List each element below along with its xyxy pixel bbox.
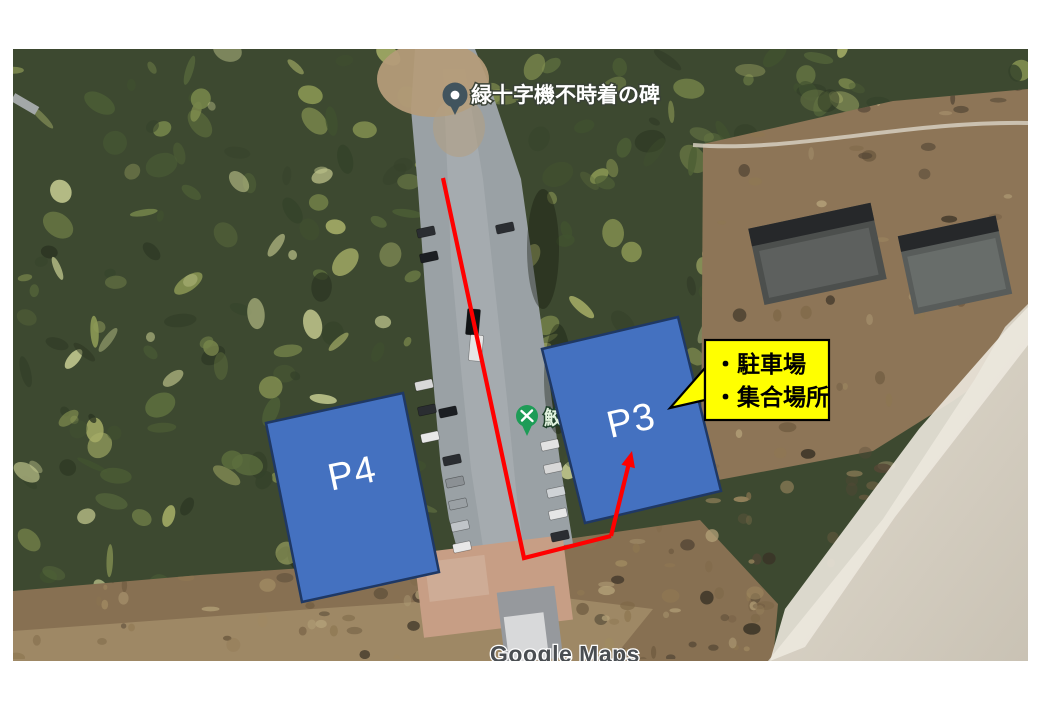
satellite-map-image: 鮫 P4 P3 ・駐車場 ・集合場	[13, 49, 1028, 661]
callout-line-1: ・駐車場	[714, 351, 806, 377]
terrain-backdrop	[13, 49, 1028, 661]
monument-pin-label: 緑十字機不時着の碑	[471, 83, 660, 107]
slide-canvas: 鮫 P4 P3 ・駐車場 ・集合場	[0, 0, 1040, 720]
monument-pin-dot	[451, 91, 460, 100]
callout-line-2: ・集合場所	[714, 384, 829, 410]
google-maps-watermark: Google Maps	[490, 641, 640, 661]
tree-shadow	[527, 189, 559, 309]
